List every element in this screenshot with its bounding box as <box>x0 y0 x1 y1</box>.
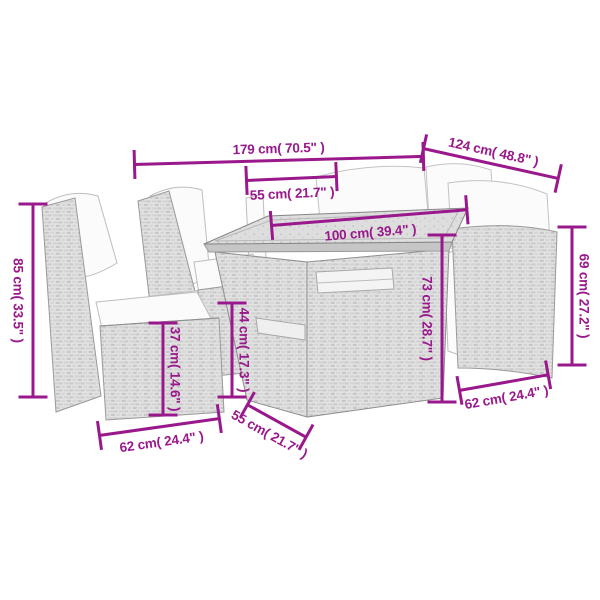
dim-right-chair-height: 69 cm( 27.2" ) <box>571 227 574 366</box>
dim-armrest-height-label: 44 cm( 17.3" ) <box>238 308 252 393</box>
dim-armrest-height: 44 cm( 17.3" ) <box>231 303 234 398</box>
dim-table-height-label: 73 cm( 28.7" ) <box>420 276 434 361</box>
dim-left-chair-height-label: 85 cm( 33.5" ) <box>11 258 25 343</box>
dim-seat-height-label: 37 cm( 14.6" ) <box>169 327 183 412</box>
dim-left-chair-height: 85 cm( 33.5" ) <box>32 204 35 398</box>
furniture-illustration <box>0 0 600 600</box>
dimension-diagram: 179 cm( 70.5" ) 124 cm( 48.8" ) 55 cm( 2… <box>0 0 600 600</box>
dim-sofa-length-label: 179 cm( 70.5" ) <box>232 140 324 156</box>
dim-seat-height: 37 cm( 14.6" ) <box>162 323 165 416</box>
dim-table-height: 73 cm( 28.7" ) <box>441 235 444 403</box>
dim-right-chair-height-label: 69 cm( 27.2" ) <box>578 254 592 339</box>
chair-body <box>452 226 557 378</box>
